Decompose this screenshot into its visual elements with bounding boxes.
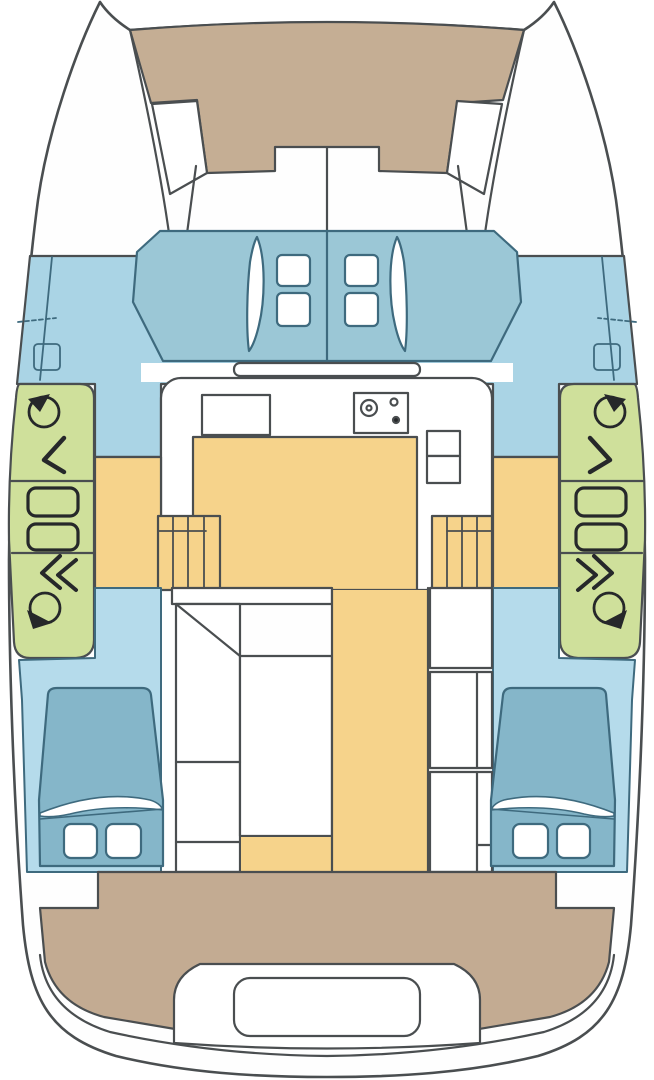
head-compartment-left [176, 604, 240, 872]
coachroof-hatch [345, 255, 378, 286]
head-compartment-right [430, 672, 492, 768]
salon-window-sill [234, 363, 420, 376]
catamaran-layout-page [0, 0, 654, 1080]
sidedeck-sole-left [95, 457, 161, 590]
catamaran-layout-plan [0, 0, 654, 1080]
fridge-compartment [427, 456, 460, 483]
head-compartment-right [430, 588, 492, 668]
midship-structures [172, 588, 492, 872]
passage-sole-patch [241, 837, 332, 872]
coachroof-hatch [277, 293, 310, 326]
stairway-left [158, 516, 220, 590]
pillow [106, 824, 141, 858]
winch-panel [9, 384, 94, 658]
galley-fridge [427, 431, 460, 483]
stairway-right [432, 516, 492, 590]
bed-mattress [39, 688, 163, 866]
stove-burner-small [393, 417, 399, 423]
pillow [64, 824, 97, 858]
aft-cabin-bed [39, 688, 163, 866]
galley-sink [202, 395, 270, 435]
aft-cabin-bed-right [491, 688, 615, 866]
galley-stove [354, 393, 408, 433]
cabinet-header [172, 588, 332, 604]
fridge-compartment [427, 431, 460, 456]
salon-sole [193, 437, 417, 590]
coachroof-hatch [345, 293, 378, 326]
companionway-sole [333, 590, 427, 872]
shower-compartment [240, 656, 332, 836]
stair-well [158, 516, 220, 590]
head-compartment-right [430, 772, 492, 872]
coachroof-group [133, 231, 521, 361]
coachroof-hatch [277, 255, 310, 286]
sidedeck-sole-right [493, 457, 559, 590]
boat-plan-root [9, 2, 645, 1077]
winch-panel-right [560, 384, 645, 658]
